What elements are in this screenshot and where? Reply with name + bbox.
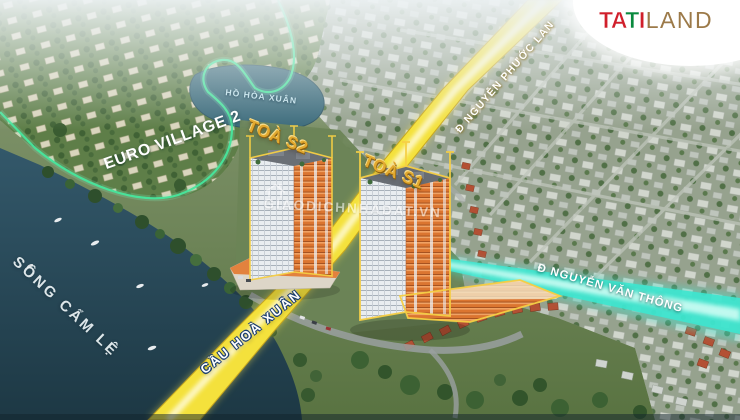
logo-letter: I [639,7,645,33]
tatiland-logo: TATILAND [599,9,713,32]
aerial-masterplan-image: EURO VILLAGE 2 HỒ HÒA XUÂN TOÀ S2 TOÀ S1… [0,0,740,420]
bottom-shadow [0,414,740,420]
logo-letter: A [611,7,625,33]
logo-letter: T [625,7,639,33]
house-icon [264,182,287,199]
logo-word-land: LAND [646,7,713,33]
logo-letter: T [599,7,611,33]
logo-word-tati: TATI [599,7,645,33]
